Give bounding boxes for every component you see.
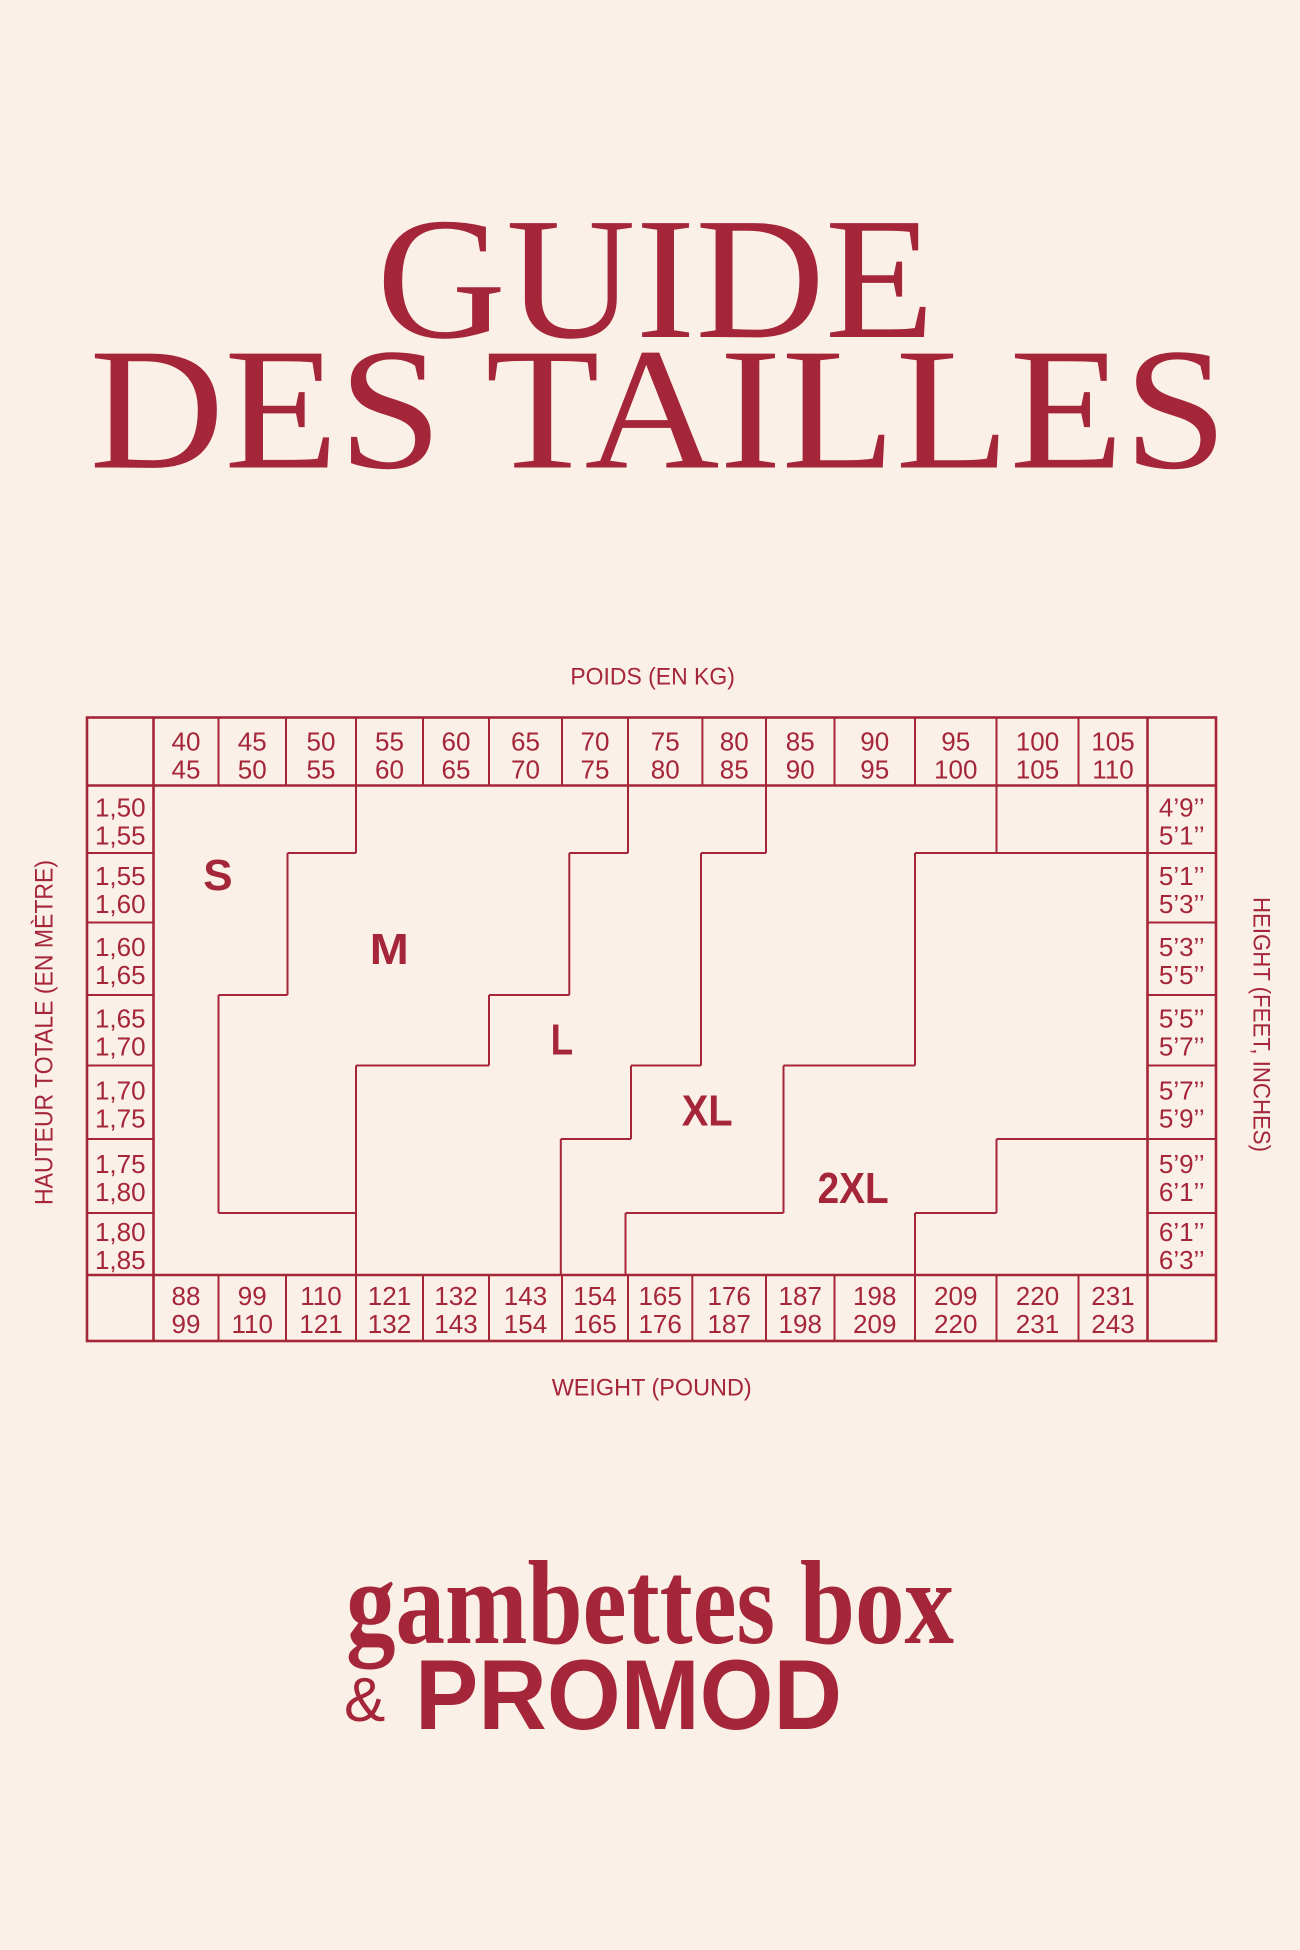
svg-text:1,50: 1,50 (95, 792, 146, 822)
svg-text:HEIGHT (FEET, INCHES): HEIGHT (FEET, INCHES) (1248, 897, 1275, 1152)
svg-text:88: 88 (172, 1281, 201, 1311)
svg-text:L: L (551, 1016, 574, 1065)
svg-text:95: 95 (860, 755, 889, 785)
svg-text:45: 45 (172, 755, 201, 785)
svg-text:220: 220 (1016, 1281, 1059, 1311)
svg-text:90: 90 (860, 727, 889, 757)
svg-text:99: 99 (238, 1281, 267, 1311)
svg-text:90: 90 (786, 755, 815, 785)
svg-text:75: 75 (651, 727, 680, 757)
svg-text:1,65: 1,65 (95, 1003, 146, 1033)
svg-text:5’3’’: 5’3’’ (1159, 932, 1205, 962)
svg-text:231: 231 (1016, 1309, 1059, 1339)
svg-text:5’1’’: 5’1’’ (1159, 820, 1205, 850)
svg-text:132: 132 (368, 1309, 411, 1339)
svg-text:176: 176 (707, 1281, 750, 1311)
svg-text:PROMOD: PROMOD (415, 1639, 842, 1750)
svg-text:5’9’’: 5’9’’ (1159, 1149, 1205, 1179)
svg-text:55: 55 (375, 727, 404, 757)
svg-text:1,55: 1,55 (95, 820, 146, 850)
svg-text:6’1’’: 6’1’’ (1159, 1217, 1205, 1247)
svg-text:1,55: 1,55 (95, 861, 146, 891)
svg-text:99: 99 (172, 1309, 201, 1339)
svg-text:143: 143 (434, 1309, 477, 1339)
svg-text:1,70: 1,70 (95, 1075, 146, 1105)
svg-text:154: 154 (504, 1309, 547, 1339)
svg-text:121: 121 (368, 1281, 411, 1311)
svg-text:143: 143 (504, 1281, 547, 1311)
svg-text:1,70: 1,70 (95, 1031, 146, 1061)
svg-text:165: 165 (638, 1281, 681, 1311)
svg-text:187: 187 (779, 1281, 822, 1311)
svg-text:5’7’’: 5’7’’ (1159, 1031, 1205, 1061)
svg-text:70: 70 (581, 727, 610, 757)
svg-text:1,80: 1,80 (95, 1177, 146, 1207)
svg-text:50: 50 (307, 727, 336, 757)
svg-text:231: 231 (1091, 1281, 1134, 1311)
svg-text:4’9’’: 4’9’’ (1159, 792, 1205, 822)
svg-text:243: 243 (1091, 1309, 1134, 1339)
svg-text:POIDS (EN KG): POIDS (EN KG) (570, 664, 735, 691)
svg-text:110: 110 (1092, 755, 1133, 785)
svg-text:50: 50 (238, 755, 267, 785)
svg-text:60: 60 (442, 727, 471, 757)
svg-text:95: 95 (941, 727, 970, 757)
svg-text:S: S (203, 851, 232, 900)
svg-text:DES TAILLES: DES TAILLES (90, 313, 1228, 506)
svg-text:6’1’’: 6’1’’ (1159, 1177, 1205, 1207)
svg-text:5’5’’: 5’5’’ (1159, 960, 1205, 990)
svg-text:M: M (370, 925, 409, 974)
svg-text:176: 176 (638, 1309, 681, 1339)
svg-text:220: 220 (934, 1309, 977, 1339)
svg-text:2XL: 2XL (818, 1164, 889, 1213)
svg-text:85: 85 (720, 755, 749, 785)
svg-text:165: 165 (573, 1309, 616, 1339)
svg-text:70: 70 (511, 755, 540, 785)
svg-text:&: & (344, 1666, 385, 1735)
svg-text:1,65: 1,65 (95, 960, 146, 990)
svg-text:1,60: 1,60 (95, 932, 146, 962)
svg-text:55: 55 (307, 755, 336, 785)
svg-text:HAUTEUR TOTALE (EN MÈTRE): HAUTEUR TOTALE (EN MÈTRE) (30, 860, 59, 1205)
svg-text:1,80: 1,80 (95, 1217, 146, 1247)
svg-text:5’1’’: 5’1’’ (1159, 861, 1205, 891)
svg-text:80: 80 (720, 727, 749, 757)
svg-text:209: 209 (934, 1281, 977, 1311)
svg-text:1,60: 1,60 (95, 889, 146, 919)
svg-text:154: 154 (573, 1281, 616, 1311)
svg-text:80: 80 (651, 755, 680, 785)
svg-text:198: 198 (853, 1281, 896, 1311)
svg-text:5’9’’: 5’9’’ (1159, 1103, 1205, 1133)
svg-text:45: 45 (238, 727, 267, 757)
svg-text:75: 75 (581, 755, 610, 785)
svg-text:187: 187 (707, 1309, 750, 1339)
svg-text:1,75: 1,75 (95, 1149, 146, 1179)
svg-text:1,75: 1,75 (95, 1103, 146, 1133)
svg-text:65: 65 (442, 755, 471, 785)
svg-text:121: 121 (299, 1309, 342, 1339)
svg-text:105: 105 (1091, 727, 1134, 757)
svg-text:100: 100 (1016, 727, 1059, 757)
svg-text:132: 132 (434, 1281, 477, 1311)
svg-text:1,85: 1,85 (95, 1245, 146, 1275)
svg-text:85: 85 (786, 727, 815, 757)
svg-text:5’7’’: 5’7’’ (1159, 1075, 1205, 1105)
svg-text:6’3’’: 6’3’’ (1159, 1245, 1205, 1275)
svg-text:110: 110 (232, 1309, 273, 1339)
svg-text:110: 110 (300, 1281, 341, 1311)
svg-text:40: 40 (172, 727, 201, 757)
svg-text:5’3’’: 5’3’’ (1159, 889, 1205, 919)
svg-text:209: 209 (853, 1309, 896, 1339)
svg-text:100: 100 (934, 755, 977, 785)
svg-text:5’5’’: 5’5’’ (1159, 1003, 1205, 1033)
svg-text:65: 65 (511, 727, 540, 757)
svg-text:60: 60 (375, 755, 404, 785)
svg-text:XL: XL (682, 1087, 733, 1136)
svg-text:198: 198 (779, 1309, 822, 1339)
svg-text:WEIGHT (POUND): WEIGHT (POUND) (552, 1374, 752, 1401)
svg-text:105: 105 (1016, 755, 1059, 785)
